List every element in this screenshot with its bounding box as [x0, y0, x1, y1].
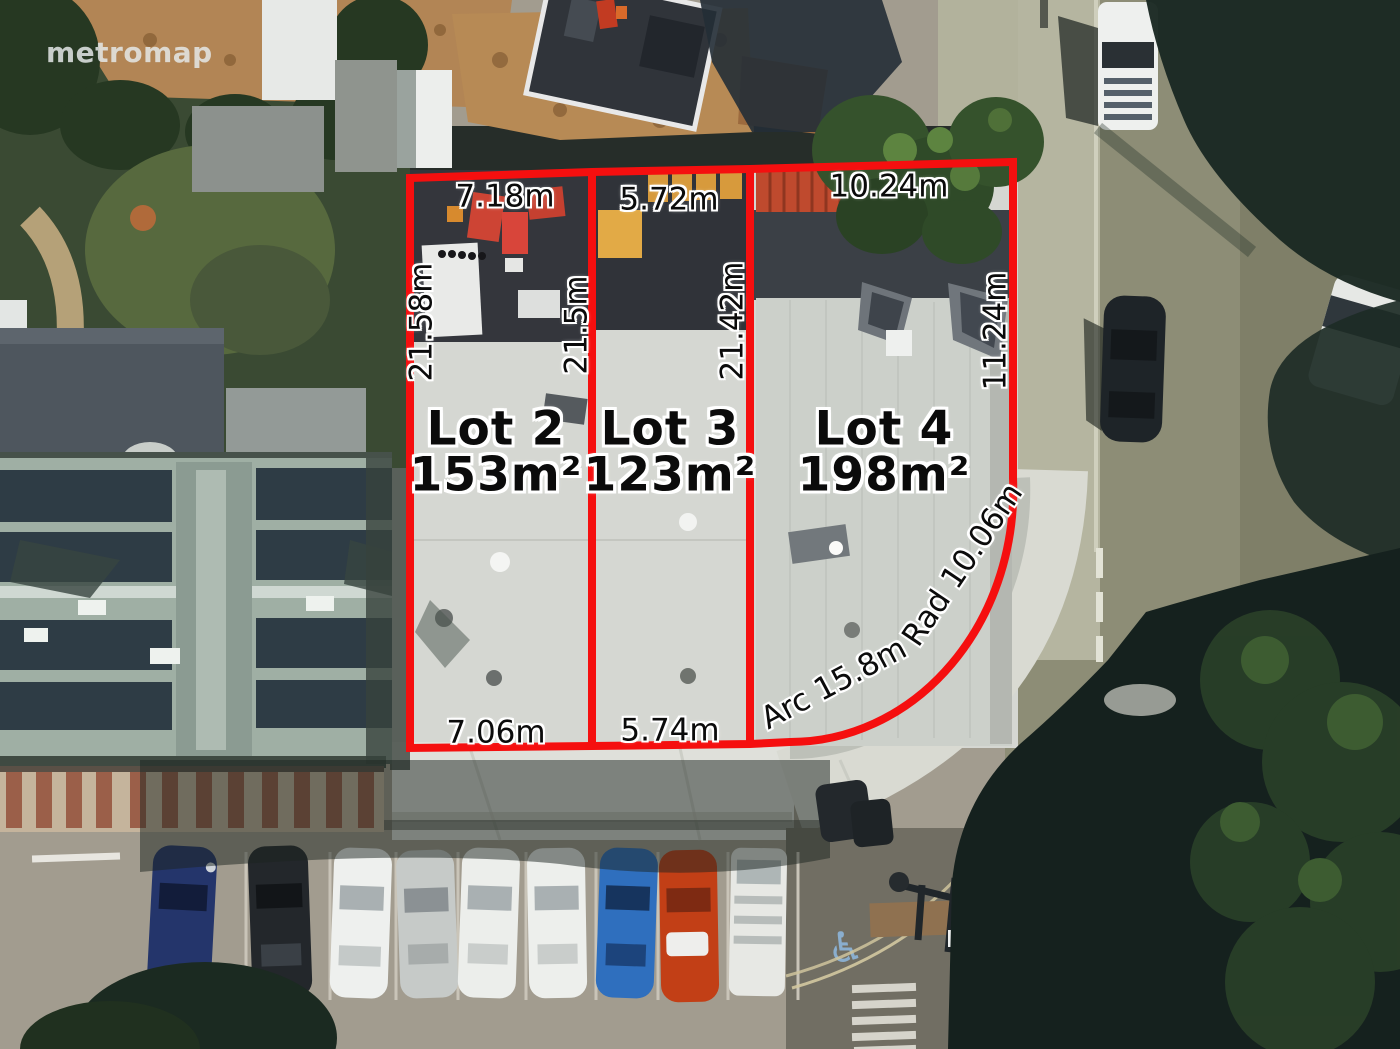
lot2-bottom-measurement: 7.06m [446, 718, 545, 749]
tree-shadow-over-cars [140, 760, 830, 873]
house-roof-2 [0, 328, 224, 464]
aerial-basemap: ♿ [0, 0, 1400, 1049]
house-roof [192, 106, 324, 192]
lot4-top-measurement: 10.24m [830, 172, 949, 203]
lot3-top-measurement: 5.72m [619, 185, 718, 216]
lot2-name: Lot 2 [427, 406, 566, 453]
lot3-bottom-measurement: 5.74m [620, 716, 719, 747]
lot2-left-measurement: 21.58m [407, 263, 438, 382]
lot3-left-measurement: 21.42m [718, 262, 749, 381]
parked-car-white-1 [329, 847, 392, 999]
parked-car-silver [396, 849, 459, 999]
parked-car-white-3 [527, 848, 588, 999]
metromap-watermark: metromap [46, 36, 213, 69]
lot4-right-measurement: 11.24m [981, 272, 1012, 391]
lot2-area: 153m² [410, 452, 583, 499]
white-ute-top [1058, 2, 1158, 130]
aerial-survey-image: ♿ [0, 0, 1400, 1049]
lot3-name: Lot 3 [601, 406, 740, 453]
lot4-area: 198m² [798, 452, 971, 499]
lot2-top-measurement: 7.18m [455, 182, 554, 213]
kerb-dashes [1096, 548, 1103, 662]
lot2-right-measurement: 21.5m [562, 275, 593, 374]
lot4-name: Lot 4 [815, 406, 954, 453]
lot3-area: 123m² [584, 452, 757, 499]
parked-car-white-2 [457, 847, 520, 999]
